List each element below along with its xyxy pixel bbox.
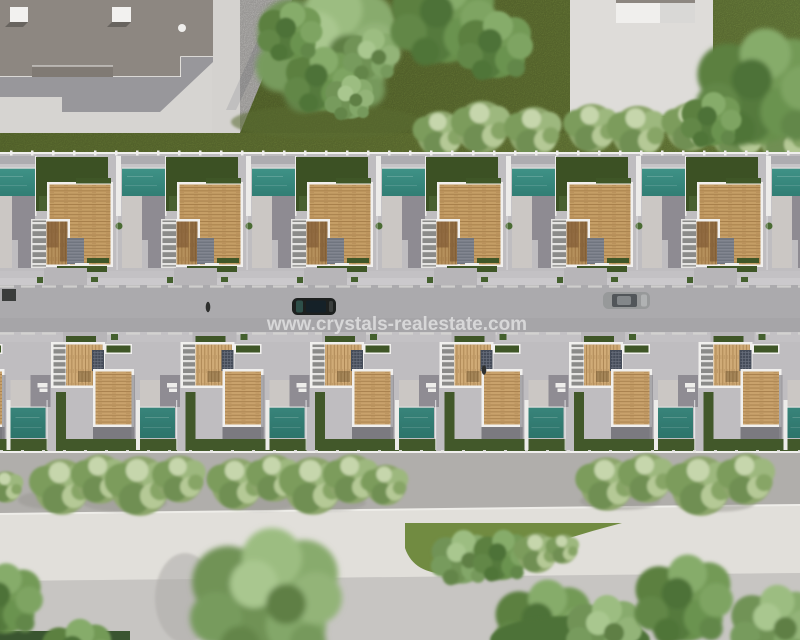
svg-text:www.crystals-realestate.com: www.crystals-realestate.com	[266, 314, 527, 335]
